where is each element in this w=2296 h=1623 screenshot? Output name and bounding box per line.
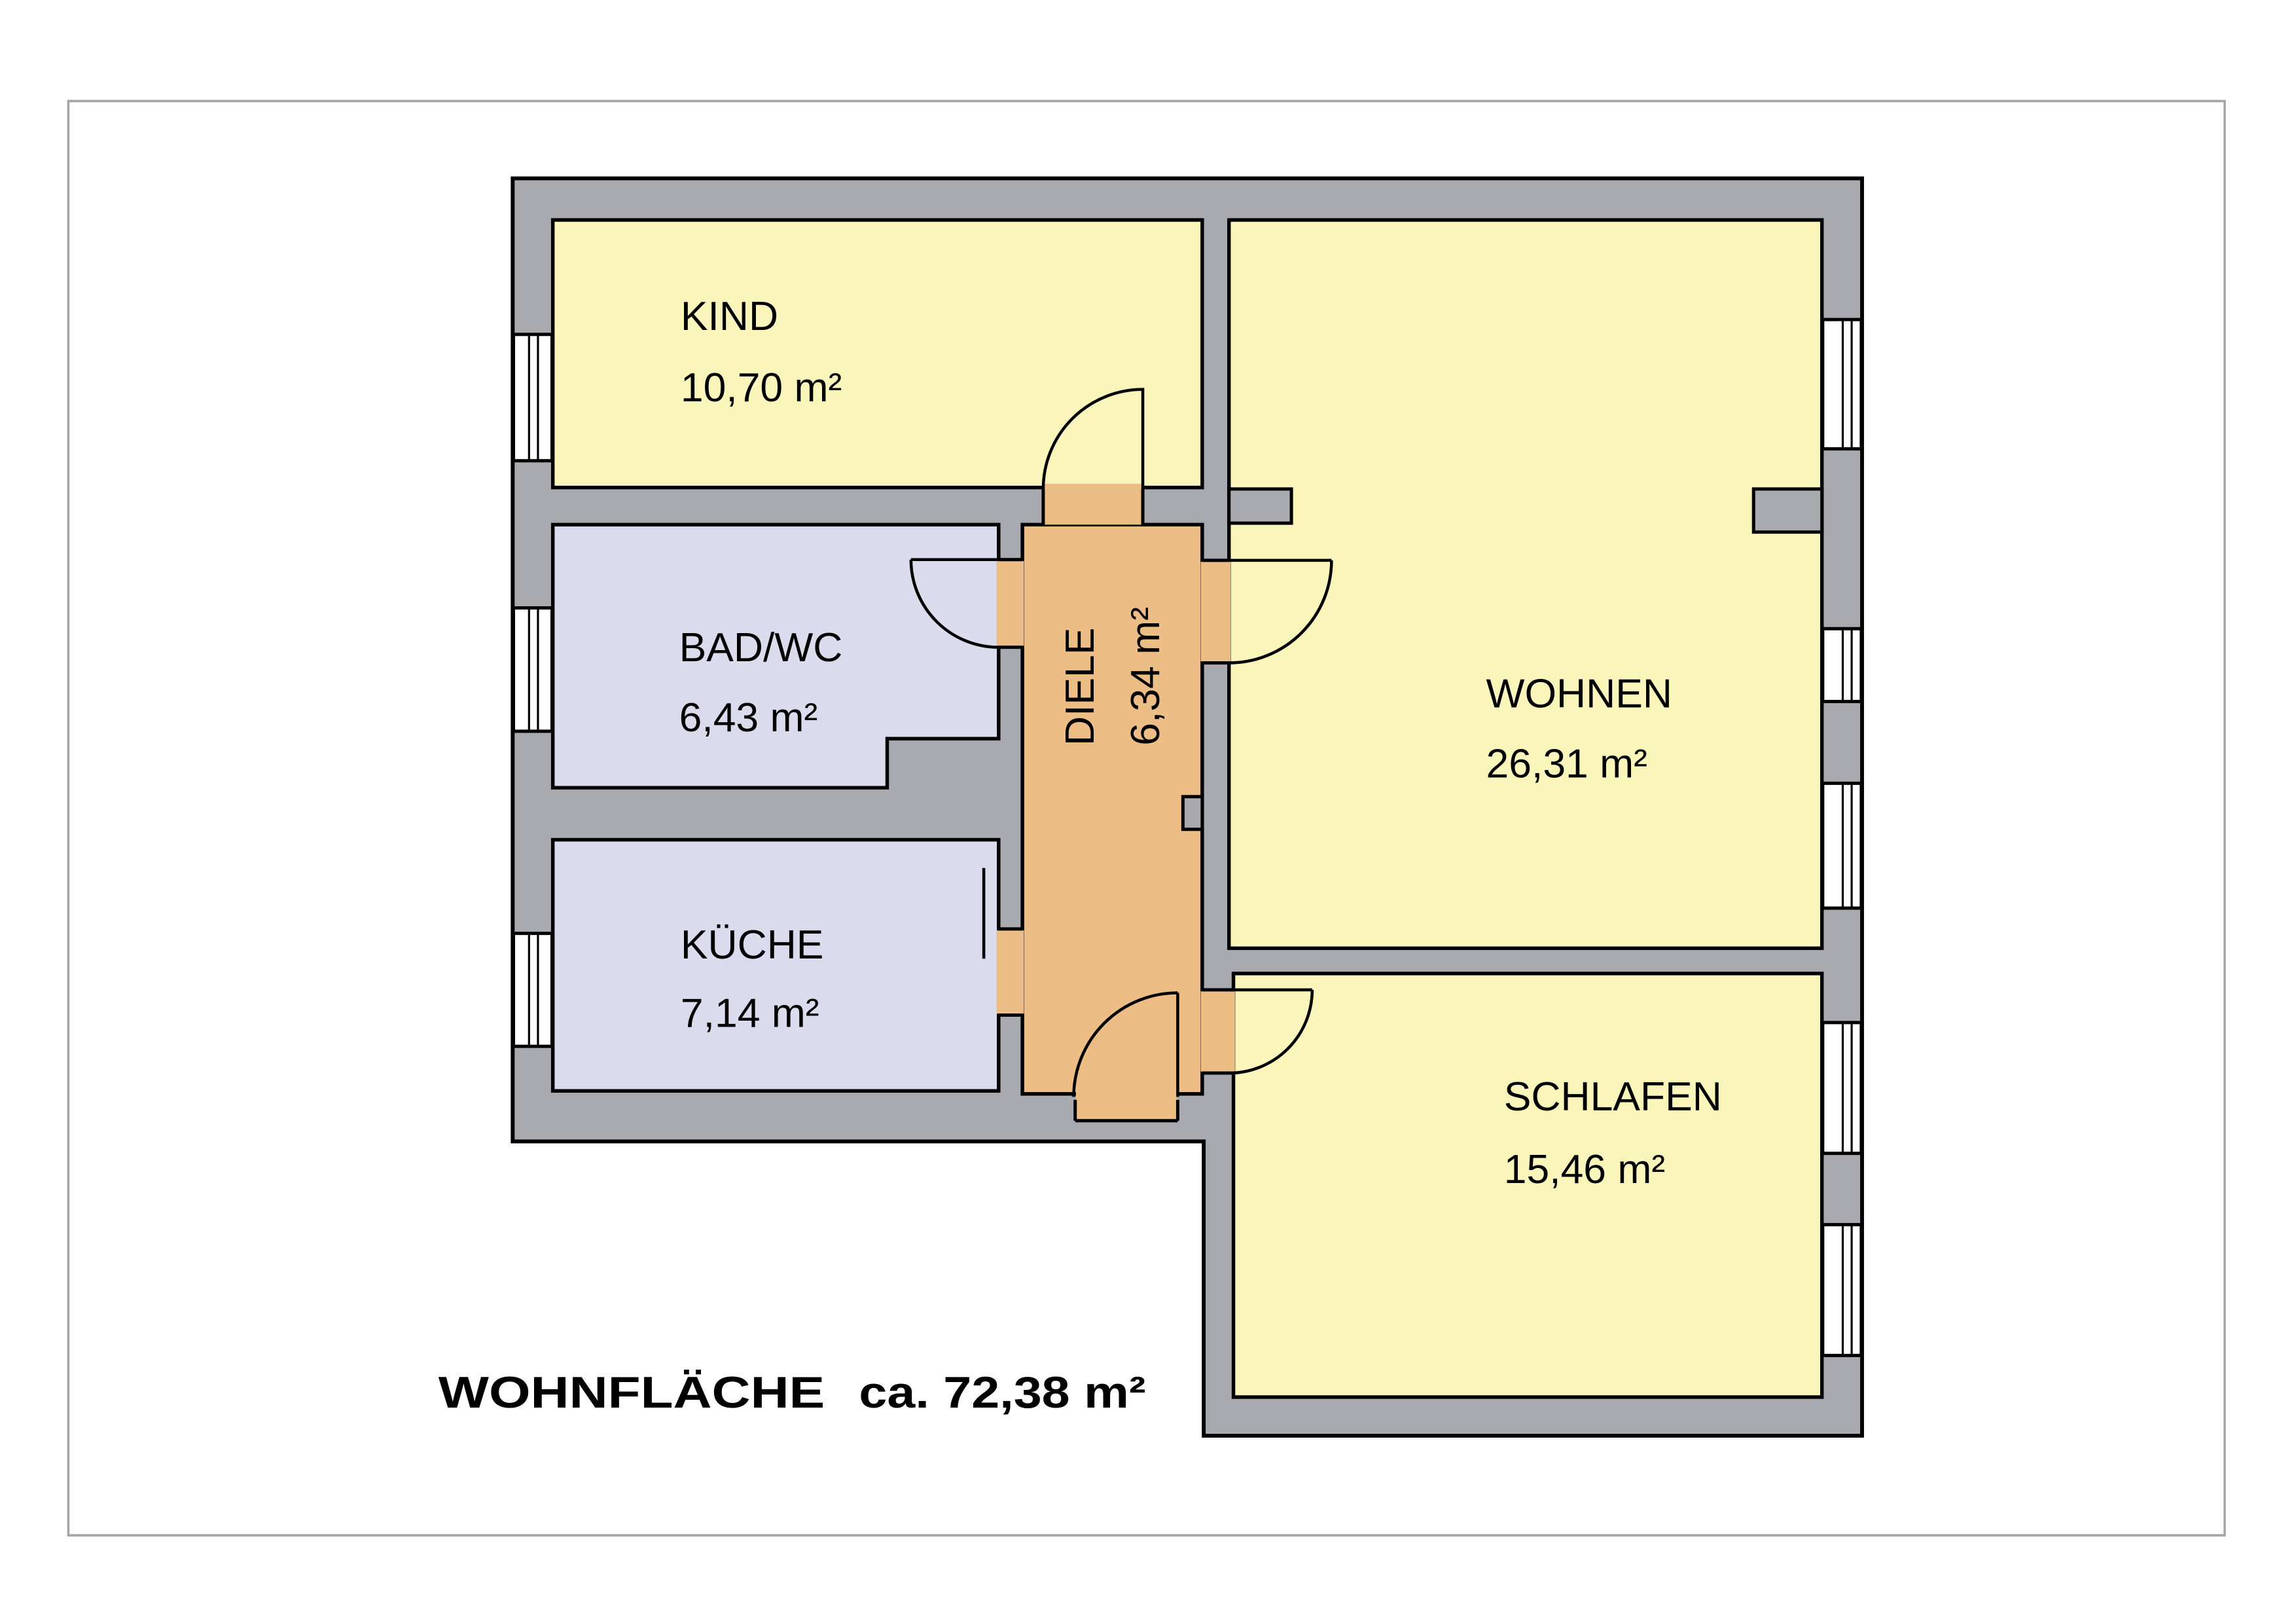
total-area-value: ca. 72,38 m² bbox=[859, 1368, 1145, 1417]
room-wohnen-label: WOHNEN bbox=[1486, 671, 1672, 717]
wall-stub-diele bbox=[1183, 797, 1202, 830]
room-schlafen-label: SCHLAFEN bbox=[1504, 1074, 1722, 1120]
floor-plan-drawing: KIND 10,70 m² BAD/WC 6,43 m² KÜCHE 7,14 … bbox=[0, 0, 2296, 1623]
window-bad bbox=[513, 608, 552, 731]
room-kueche-label: KÜCHE bbox=[681, 922, 824, 968]
floor-plan-page: KIND 10,70 m² BAD/WC 6,43 m² KÜCHE 7,14 … bbox=[0, 0, 2296, 1623]
window-kind bbox=[513, 335, 552, 461]
total-area-label: WOHNFLÄCHE bbox=[439, 1368, 825, 1417]
room-kind-floor bbox=[553, 220, 1202, 488]
wall-stub-wohnen-right bbox=[1753, 489, 1821, 532]
room-wohnen-area: 26,31 m² bbox=[1486, 740, 1647, 786]
room-kind-label: KIND bbox=[681, 293, 778, 339]
room-bad-label: BAD/WC bbox=[679, 625, 843, 670]
door-opening-kueche bbox=[996, 930, 1024, 1013]
room-kueche-area: 7,14 m² bbox=[681, 991, 819, 1036]
room-schlafen-area: 15,46 m² bbox=[1504, 1146, 1665, 1192]
total-area-text: WOHNFLÄCHEca. 72,38 m² bbox=[439, 1368, 1146, 1417]
door-opening-schlafen bbox=[1201, 991, 1235, 1072]
room-wohnen-floor bbox=[1229, 220, 1822, 948]
wall-stub-wohnen-left bbox=[1229, 489, 1291, 523]
room-diele-label: DIELE bbox=[1057, 628, 1103, 746]
door-opening-wohnen bbox=[1201, 562, 1230, 661]
windows-left-wall bbox=[513, 335, 552, 1046]
door-opening-bad bbox=[996, 561, 1024, 646]
room-kind-area: 10,70 m² bbox=[681, 365, 842, 410]
door-opening-entry bbox=[1076, 1091, 1177, 1120]
window-kueche bbox=[513, 934, 552, 1047]
door-opening-kind bbox=[1043, 484, 1143, 524]
room-diele-floor bbox=[1022, 524, 1202, 1093]
room-diele-area: 6,34 m² bbox=[1122, 607, 1168, 746]
room-bad-area: 6,43 m² bbox=[679, 695, 818, 740]
